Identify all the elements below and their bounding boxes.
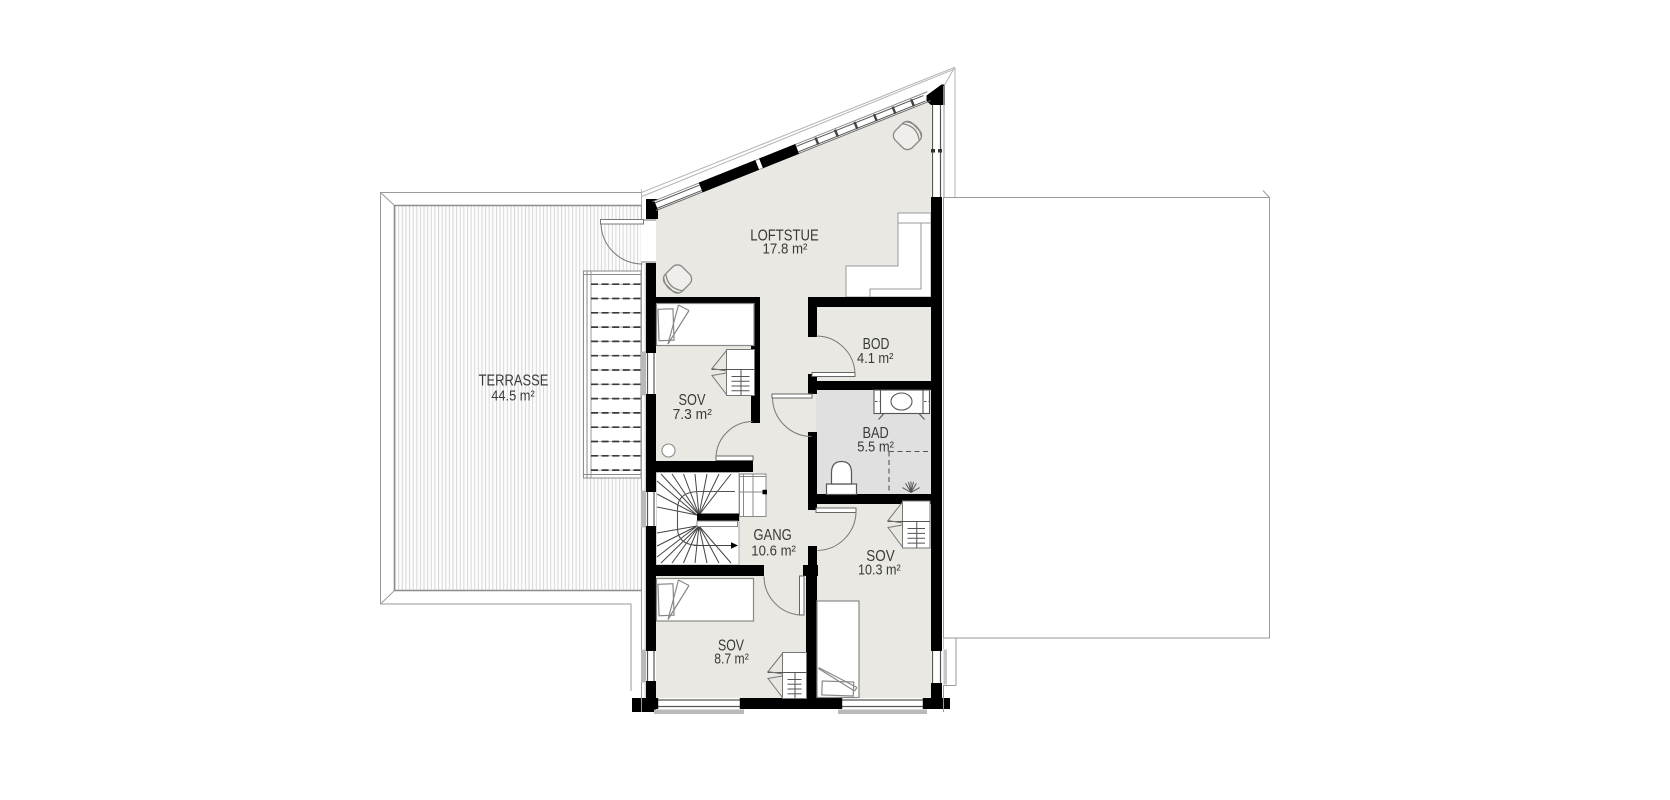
svg-text:44.5 m²: 44.5 m²	[491, 388, 535, 404]
svg-text:8.7 m²: 8.7 m²	[714, 650, 749, 666]
svg-text:17.8 m²: 17.8 m²	[763, 240, 808, 257]
svg-text:7.3 m²: 7.3 m²	[673, 407, 713, 423]
svg-text:10.3 m²: 10.3 m²	[858, 562, 901, 578]
svg-text:4.1 m²: 4.1 m²	[857, 350, 894, 366]
svg-text:5.5 m²: 5.5 m²	[857, 439, 894, 455]
svg-text:10.6 m²: 10.6 m²	[751, 542, 796, 559]
